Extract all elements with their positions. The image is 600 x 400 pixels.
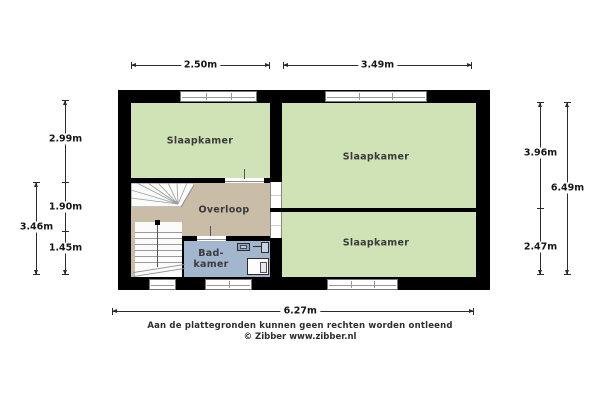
dimension-bottom-total: 6.27m bbox=[112, 311, 474, 312]
shower-icon bbox=[253, 242, 269, 251]
stairs-icon bbox=[135, 222, 182, 277]
dimension-top-left-width: 2.50m bbox=[131, 65, 270, 66]
door-bathroom bbox=[197, 236, 226, 241]
room-label-landing: Overloop bbox=[199, 205, 250, 216]
dimension-left-outer: 3.46m bbox=[36, 182, 37, 275]
door-leaf bbox=[244, 169, 245, 179]
footer: Aan de plattegronden kunnen geen rechten… bbox=[0, 321, 600, 342]
dimension-right-column: 3.96m 2.47m bbox=[540, 102, 541, 275]
dimension-left-column: 2.99m 1.90m 1.45m bbox=[65, 100, 66, 275]
toilet-icon bbox=[247, 258, 269, 275]
room-label-bathroom-line1: Bad- bbox=[193, 248, 228, 259]
door-leaf bbox=[210, 226, 211, 236]
room-label-bedroom-top-left: Slaapkamer bbox=[167, 136, 233, 147]
room-label-bedroom-right: Slaapkamer bbox=[343, 152, 409, 163]
disclaimer-text: Aan de plattegronden kunnen geen rechten… bbox=[0, 321, 600, 331]
door-bedroom-bottom-right bbox=[270, 212, 282, 238]
window-icon bbox=[327, 279, 398, 290]
window-icon bbox=[325, 91, 427, 102]
floor-plan-canvas: Slaapkamer Slaapkamer Slaapkamer Overloo… bbox=[0, 0, 600, 400]
door-bedroom-right bbox=[270, 182, 282, 208]
sink-icon bbox=[237, 243, 250, 251]
window-icon bbox=[205, 279, 252, 290]
room-label-bathroom-line2: kamer bbox=[193, 259, 228, 270]
window-icon bbox=[180, 91, 257, 102]
room-label-bathroom: Bad- kamer bbox=[193, 248, 228, 270]
stairs-icon bbox=[131, 183, 194, 207]
dimension-top-right-width: 3.49m bbox=[283, 65, 472, 66]
copyright-text: © Zibber www.zibber.nl bbox=[0, 332, 600, 342]
dimension-right-outer: 6.49m bbox=[567, 102, 568, 275]
room-label-bedroom-bottom-right: Slaapkamer bbox=[343, 238, 409, 249]
window-icon bbox=[149, 279, 176, 290]
